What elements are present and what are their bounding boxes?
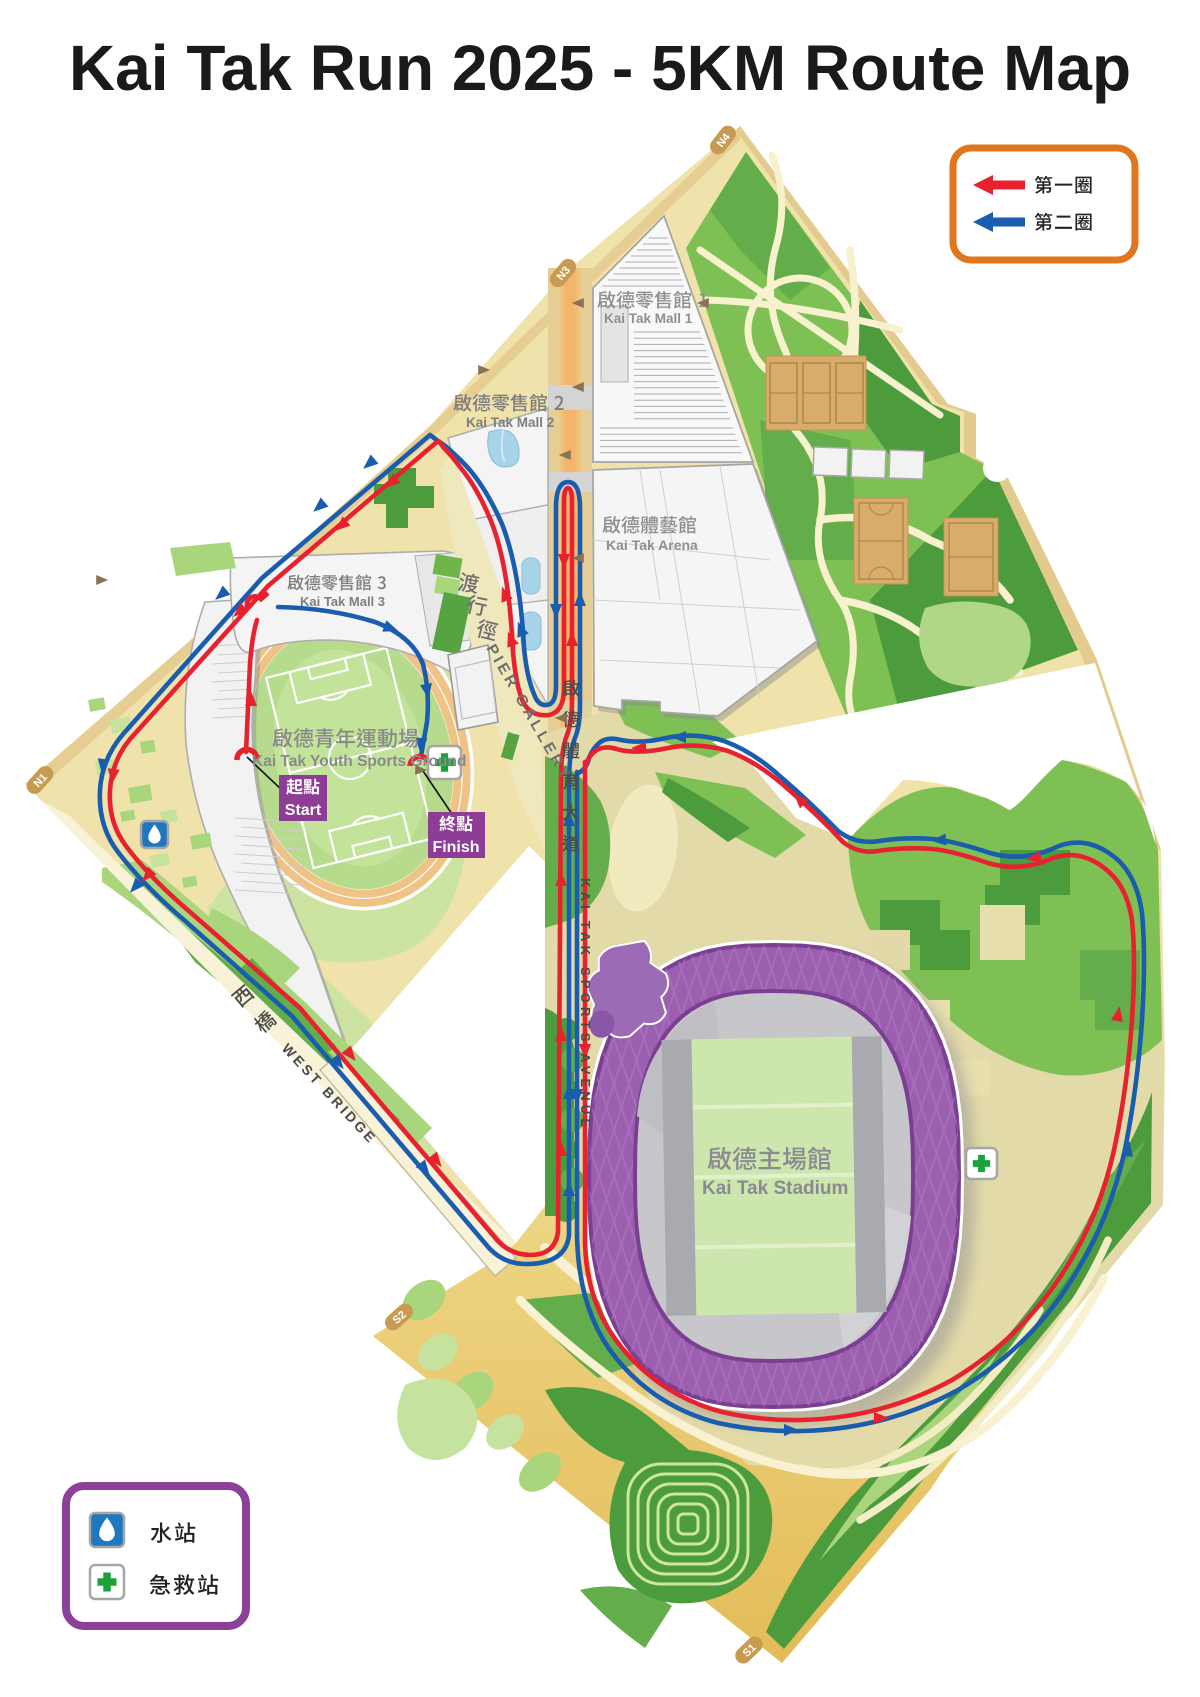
svg-text:Kai Tak Mall 1: Kai Tak Mall 1 <box>604 311 693 326</box>
svg-text:Kai Tak Run 2025 - 5KM Route M: Kai Tak Run 2025 - 5KM Route Map <box>69 32 1131 104</box>
svg-text:Kai Tak Mall 2: Kai Tak Mall 2 <box>466 415 554 430</box>
svg-text:Finish: Finish <box>432 839 479 856</box>
svg-text:Kai Tak Arena: Kai Tak Arena <box>606 537 698 553</box>
svg-text:Kai Tak Youth Sports Ground: Kai Tak Youth Sports Ground <box>252 753 466 770</box>
svg-text:Start: Start <box>285 802 322 819</box>
svg-text:Kai Tak Stadium: Kai Tak Stadium <box>702 1178 848 1199</box>
svg-text:KAI TAK SPORTS AVENUE: KAI TAK SPORTS AVENUE <box>578 878 593 1131</box>
svg-text:Kai Tak Mall 3: Kai Tak Mall 3 <box>300 594 385 609</box>
